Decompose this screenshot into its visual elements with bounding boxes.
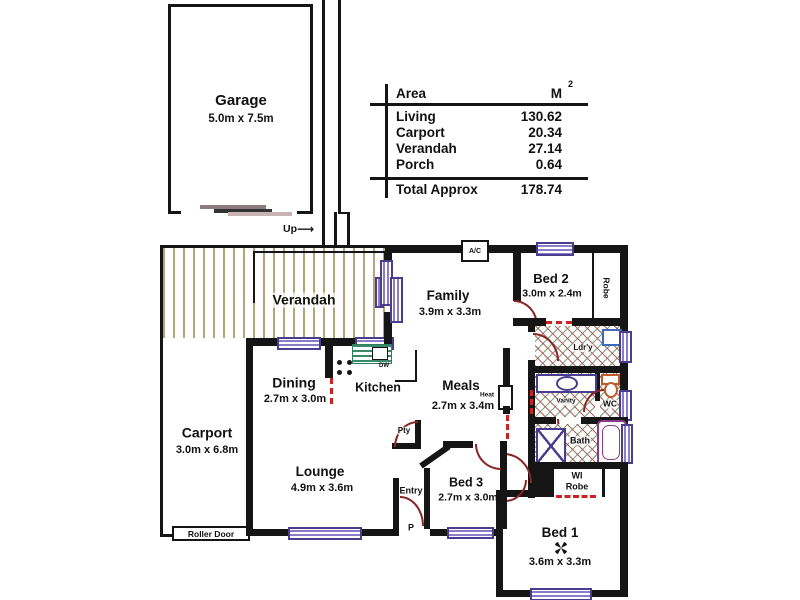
- window: [536, 242, 574, 256]
- shower-icon: [536, 428, 566, 464]
- roller-door-label: Roller Door: [188, 529, 234, 539]
- window: [447, 527, 494, 539]
- room-dims-meals: 2.7m x 3.4m: [432, 401, 494, 413]
- toilet-icon: [604, 382, 618, 398]
- room-label-wi-robe-line1: WI: [572, 471, 583, 480]
- table-row-label: Living: [396, 109, 436, 124]
- room-label-wc: WC: [603, 400, 617, 409]
- wall: [528, 366, 628, 373]
- room-dims-bed1: 3.6m x 3.3m: [529, 557, 591, 569]
- window: [621, 424, 633, 464]
- wall: [325, 346, 333, 378]
- room-label-porch: P: [408, 523, 414, 532]
- wall: [168, 211, 181, 214]
- wall: [424, 468, 430, 529]
- room-label-entry: Entry: [399, 486, 422, 495]
- room-label-pantry: Pty: [398, 427, 410, 435]
- floor-plan: Garage 5.0m x 7.5m Up⟶ Area M 2 Living 1…: [0, 0, 800, 600]
- sliding-door-dashed: [530, 390, 533, 414]
- path-rail: [322, 0, 325, 246]
- kitchen-sink-icon: [372, 347, 388, 360]
- wall: [168, 4, 313, 7]
- wall: [528, 462, 628, 469]
- path-rail: [334, 212, 337, 246]
- wall: [528, 318, 535, 332]
- table-row-value: 0.64: [450, 157, 562, 172]
- window: [619, 331, 632, 363]
- table-header-area: Area: [396, 86, 426, 101]
- door-arc: [475, 444, 501, 470]
- wall: [310, 4, 313, 214]
- up-label-group: Up⟶: [283, 222, 312, 236]
- room-label-meals: Meals: [442, 379, 480, 393]
- wall: [358, 529, 396, 536]
- wall: [317, 338, 355, 346]
- room-label-bed1: Bed 1: [542, 526, 579, 540]
- wall: [443, 441, 473, 448]
- wall: [246, 338, 277, 346]
- room-dims-lounge: 4.9m x 3.6m: [291, 483, 353, 495]
- wall: [513, 253, 521, 301]
- path-rail: [338, 0, 341, 214]
- wall: [160, 338, 163, 537]
- room-dims-bed3: 2.7m x 3.0m: [438, 492, 498, 503]
- sink-icon: [556, 376, 578, 391]
- ceiling-fan-icon: [553, 540, 569, 556]
- room-dims-bed2: 3.0m x 2.4m: [522, 288, 582, 299]
- table-total-value: 178.74: [450, 182, 562, 197]
- wall: [430, 529, 447, 536]
- wall: [572, 318, 628, 326]
- wall: [496, 590, 532, 597]
- ac-unit: A/C: [461, 240, 489, 262]
- window: [277, 337, 321, 350]
- room-label-laundry: Ldr'y: [572, 344, 593, 352]
- room-label-vanity: Vanity: [556, 399, 575, 406]
- table-row-value: 20.34: [450, 125, 562, 140]
- wall: [160, 245, 163, 338]
- robe-front: [592, 253, 594, 318]
- room-label-dining: Dining: [272, 376, 316, 391]
- wall: [586, 590, 628, 597]
- sliding-door-panel: [390, 277, 403, 323]
- window: [288, 527, 362, 540]
- table-row-value: 27.14: [450, 141, 562, 156]
- wall: [503, 348, 510, 386]
- room-dims-dining: 2.7m x 3.0m: [264, 394, 326, 406]
- ac-label: A/C: [469, 248, 481, 255]
- up-label: Up: [283, 223, 297, 235]
- table-header-unit: M: [450, 86, 562, 101]
- wall: [602, 469, 605, 497]
- wall: [503, 406, 510, 414]
- pantry-dashed: [330, 378, 333, 404]
- room-label-kitchen: Kitchen: [355, 381, 401, 394]
- wall: [532, 469, 554, 497]
- room-label-bath: Bath: [569, 436, 591, 445]
- room-dims-carport: 3.0m x 6.8m: [176, 445, 238, 457]
- heat-label: Heat: [480, 393, 494, 400]
- table-rule-vertical: [385, 84, 388, 198]
- wall-outline: [253, 251, 255, 303]
- wall: [246, 338, 253, 536]
- sliding-door-dashed: [506, 415, 509, 439]
- table-rule-horizontal: [370, 177, 588, 180]
- bathtub-icon: [602, 425, 620, 460]
- bench-outline: [415, 350, 417, 382]
- wall: [528, 417, 556, 424]
- room-label-bed2: Bed 2: [533, 272, 568, 286]
- roller-door: Roller Door: [172, 526, 250, 541]
- wall: [393, 478, 399, 536]
- table-row-value: 130.62: [450, 109, 562, 124]
- room-dims-garage: 5.0m x 7.5m: [208, 113, 273, 125]
- wall: [620, 462, 628, 597]
- room-label-bed3: Bed 3: [449, 476, 483, 489]
- room-label-lounge: Lounge: [296, 465, 345, 479]
- cooktop-icon: [336, 359, 353, 376]
- room-label-garage: Garage: [215, 93, 267, 109]
- sliding-door-dashed: [556, 495, 596, 498]
- dw-label: DW: [379, 363, 389, 369]
- room-label-wi-robe-line2: Robe: [566, 482, 589, 491]
- wall: [500, 441, 507, 529]
- room-label-carport: Carport: [182, 426, 233, 441]
- room-label-verandah: Verandah: [270, 293, 337, 308]
- path-rail: [338, 212, 350, 214]
- room-label-robe: Robe: [602, 277, 611, 298]
- up-arrow-icon: ⟶: [297, 222, 312, 236]
- table-row-label: Carport: [396, 125, 445, 140]
- sliding-door-dashed: [546, 321, 572, 324]
- table-rule-horizontal: [370, 103, 588, 106]
- wall: [297, 211, 313, 214]
- room-label-family: Family: [427, 289, 470, 303]
- garage-door-panel: [228, 212, 292, 216]
- wall: [385, 245, 628, 253]
- path-rail: [347, 212, 350, 246]
- table-row-label: Verandah: [396, 141, 457, 156]
- table-row-label: Porch: [396, 157, 434, 172]
- wall: [168, 4, 171, 214]
- room-dims-family: 3.9m x 3.3m: [419, 307, 481, 319]
- wall: [246, 529, 288, 536]
- wall: [160, 245, 390, 248]
- table-header-unit-sup: 2: [568, 79, 573, 89]
- wall-outline: [255, 251, 388, 253]
- window: [530, 588, 592, 600]
- door-arc: [505, 480, 527, 502]
